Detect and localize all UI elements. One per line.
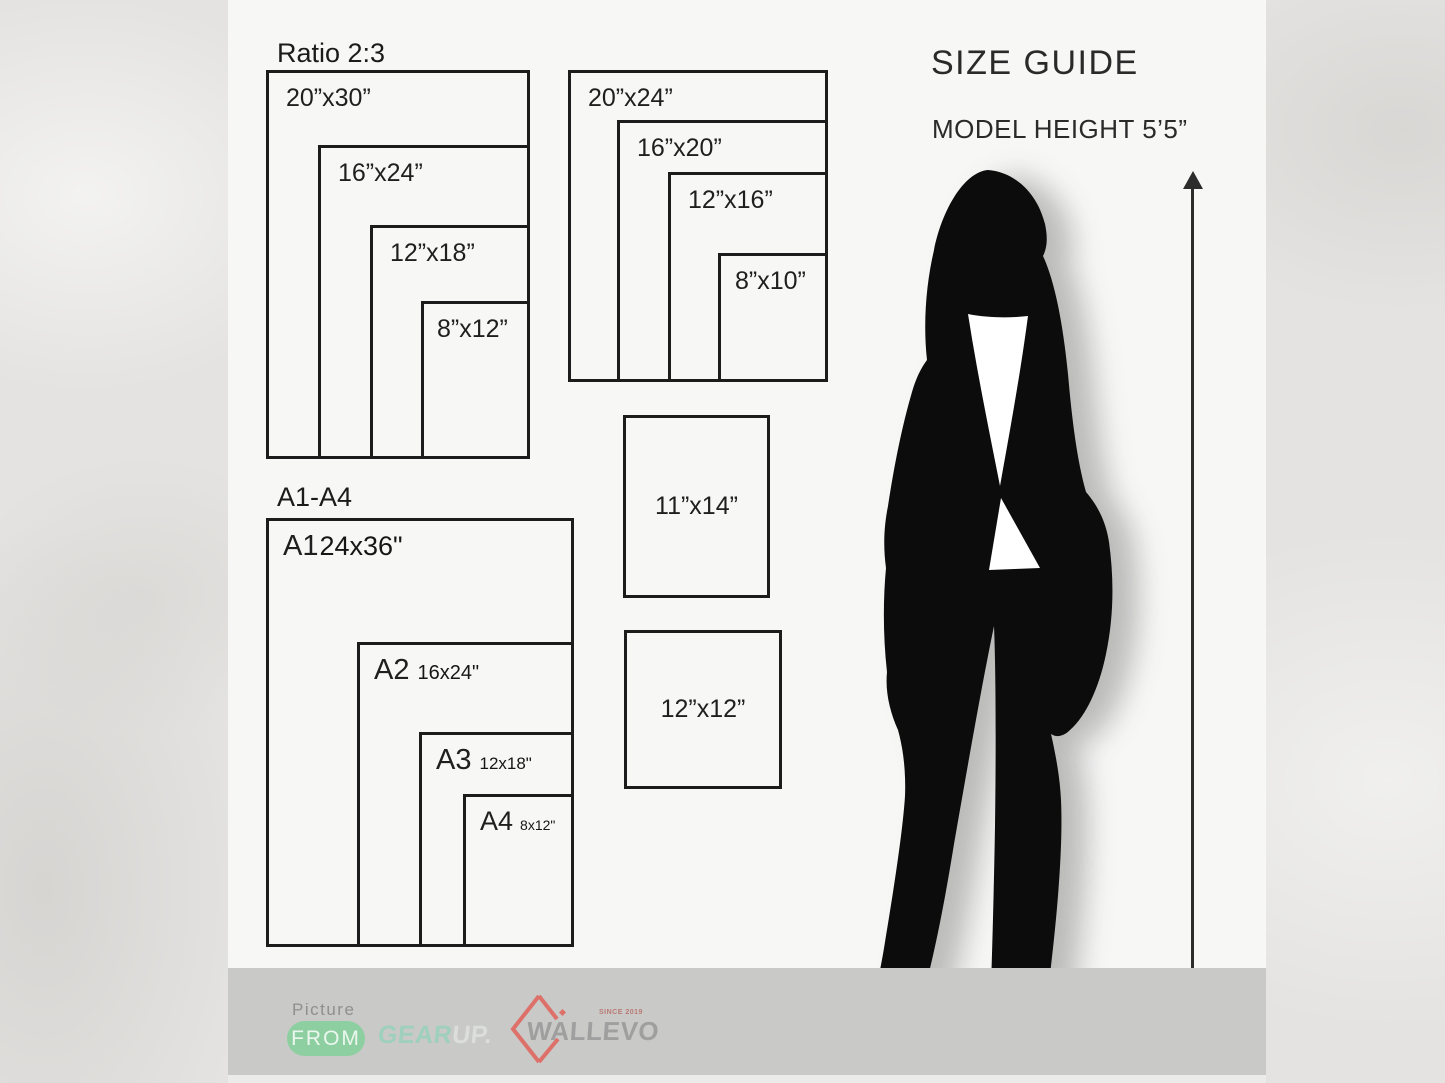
height-arrow-line <box>1191 186 1194 992</box>
a4-name: A4 <box>480 806 513 837</box>
a2-dims: 16x24" <box>417 662 479 685</box>
ratio-group-heading: Ratio 2:3 <box>277 38 385 69</box>
size-label-11x14: 11”x14” <box>655 492 738 521</box>
size-rect-11x14: 11”x14” <box>623 415 770 598</box>
model-height-label: MODEL HEIGHT 5’5” <box>932 114 1188 145</box>
a3-name: A3 <box>436 744 471 777</box>
from-badge: FROM <box>287 1021 365 1056</box>
a3-dims: 12x18" <box>479 754 531 774</box>
a1-name: A1 <box>283 530 318 563</box>
size-label-a4: A4 8x12" <box>466 797 571 837</box>
size-rect-a4: A4 8x12" <box>463 794 574 947</box>
size-rect-8x12: 8”x12” <box>421 301 530 459</box>
gearup-logo-gear: GEAR <box>377 1021 454 1049</box>
size-label-8x12: 8”x12” <box>424 304 527 344</box>
wallevo-logo: SINCE 2019 WALLEVO <box>505 990 645 1065</box>
wallevo-since-label: SINCE 2019 <box>599 1009 643 1016</box>
a1-dims: 24x36" <box>319 531 402 562</box>
footer-strip <box>228 1075 1266 1083</box>
size-guide-graphic: Ratio 2:3 20”x30” 16”x24” 12”x18” 8”x12”… <box>0 0 1445 1083</box>
a-group-heading: A1-A4 <box>277 482 352 513</box>
size-label-20x30: 20”x30” <box>269 73 527 113</box>
size-label-12x12: 12”x12” <box>661 695 746 724</box>
height-arrow-up-icon <box>1183 171 1203 189</box>
size-rect-8x10: 8”x10” <box>718 253 828 382</box>
size-label-20x24: 20”x24” <box>571 73 825 113</box>
gearup-logo-up: UP. <box>451 1021 494 1049</box>
size-label-8x10: 8”x10” <box>721 256 825 296</box>
page-title: SIZE GUIDE <box>931 44 1139 83</box>
wallevo-logo-text: WALLEVO <box>526 1016 660 1047</box>
gearup-logo: GEARUP. <box>376 1021 493 1050</box>
size-label-12x18: 12”x18” <box>373 228 527 268</box>
a4-dims: 8x12" <box>520 817 555 833</box>
size-label-12x16: 12”x16” <box>671 175 825 215</box>
size-rect-12x12: 12”x12” <box>624 630 782 789</box>
a2-name: A2 <box>374 654 409 687</box>
from-badge-label: FROM <box>291 1027 361 1051</box>
picture-label: Picture <box>292 1000 355 1020</box>
size-label-a3: A3 12x18" <box>422 735 571 777</box>
size-label-16x24: 16”x24” <box>321 148 527 188</box>
size-label-16x20: 16”x20” <box>620 123 825 163</box>
model-silhouette <box>848 164 1160 1024</box>
size-label-a2: A2 16x24" <box>360 645 571 687</box>
size-label-a1: A1 24x36" <box>269 521 571 563</box>
